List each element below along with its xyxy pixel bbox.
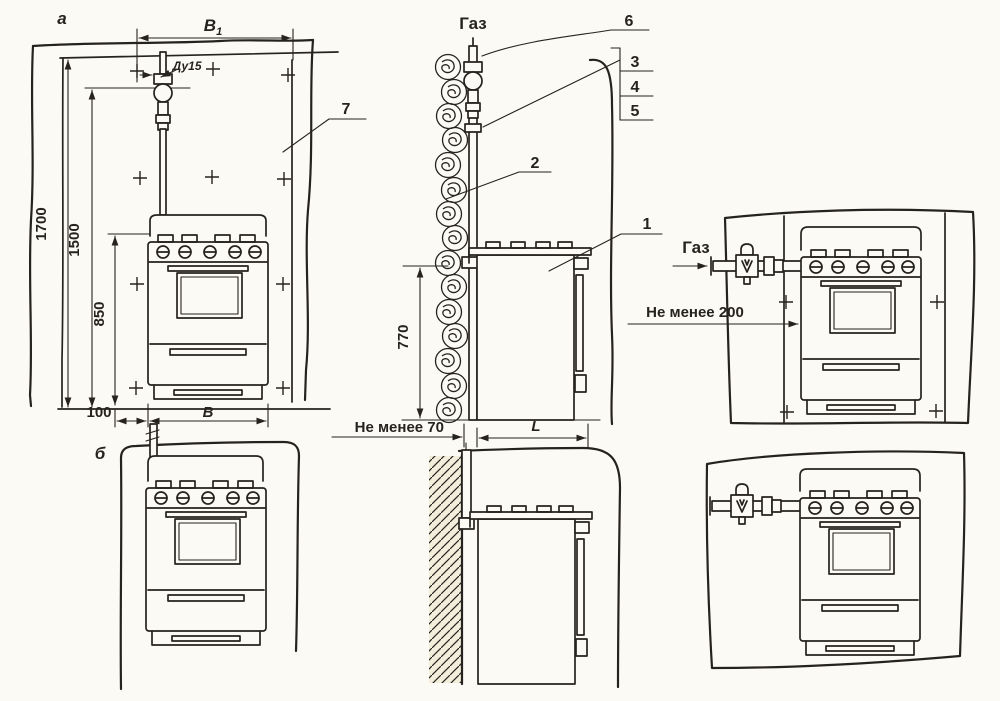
figure-b-label: б — [95, 444, 106, 463]
svg-text:Ду15: Ду15 — [172, 59, 202, 73]
hatched-wall — [429, 456, 462, 683]
stove-backsplash — [150, 215, 266, 236]
gas-riser-pipe — [150, 424, 157, 457]
svg-text:850: 850 — [91, 301, 108, 326]
svg-text:770: 770 — [395, 324, 412, 349]
svg-text:6: 6 — [625, 13, 634, 30]
pipe-union — [465, 124, 481, 132]
svg-text:2: 2 — [531, 155, 540, 172]
stove-side-view — [469, 242, 591, 420]
pipe-union — [762, 497, 781, 515]
stove-side-view — [470, 506, 592, 684]
diagram-canvas: а — [0, 0, 1000, 701]
svg-text:Не менее 200: Не менее 200 — [646, 304, 744, 321]
svg-text:100: 100 — [86, 404, 111, 421]
svg-text:3: 3 — [631, 54, 640, 71]
svg-text:L: L — [531, 418, 540, 435]
svg-text:1: 1 — [643, 216, 652, 233]
stove-front-view — [146, 481, 266, 645]
pipe-union — [764, 257, 783, 275]
stove-front-view — [800, 491, 920, 655]
svg-text:4: 4 — [631, 79, 640, 96]
gas-riser-pipe — [160, 129, 166, 215]
stove-front-view — [148, 235, 268, 399]
stove-backsplash — [148, 456, 263, 481]
gas-label: Газ — [459, 14, 487, 33]
stove-front-view — [801, 250, 921, 414]
svg-text:5: 5 — [631, 103, 640, 120]
svg-text:В: В — [203, 404, 214, 421]
svg-text:Не менее 70: Не менее 70 — [355, 419, 444, 436]
stove-top-band — [801, 227, 921, 250]
svg-text:Газ: Газ — [682, 238, 710, 257]
gas-supply-pipe — [712, 501, 802, 511]
figure-a-label: а — [57, 9, 66, 28]
gas-riser-pipe — [462, 450, 471, 518]
gas-riser-pipe — [160, 52, 166, 74]
svg-text:7: 7 — [342, 101, 351, 118]
stove-top-band — [800, 469, 920, 491]
svg-text:1700: 1700 — [33, 207, 50, 240]
svg-text:1500: 1500 — [66, 223, 83, 256]
